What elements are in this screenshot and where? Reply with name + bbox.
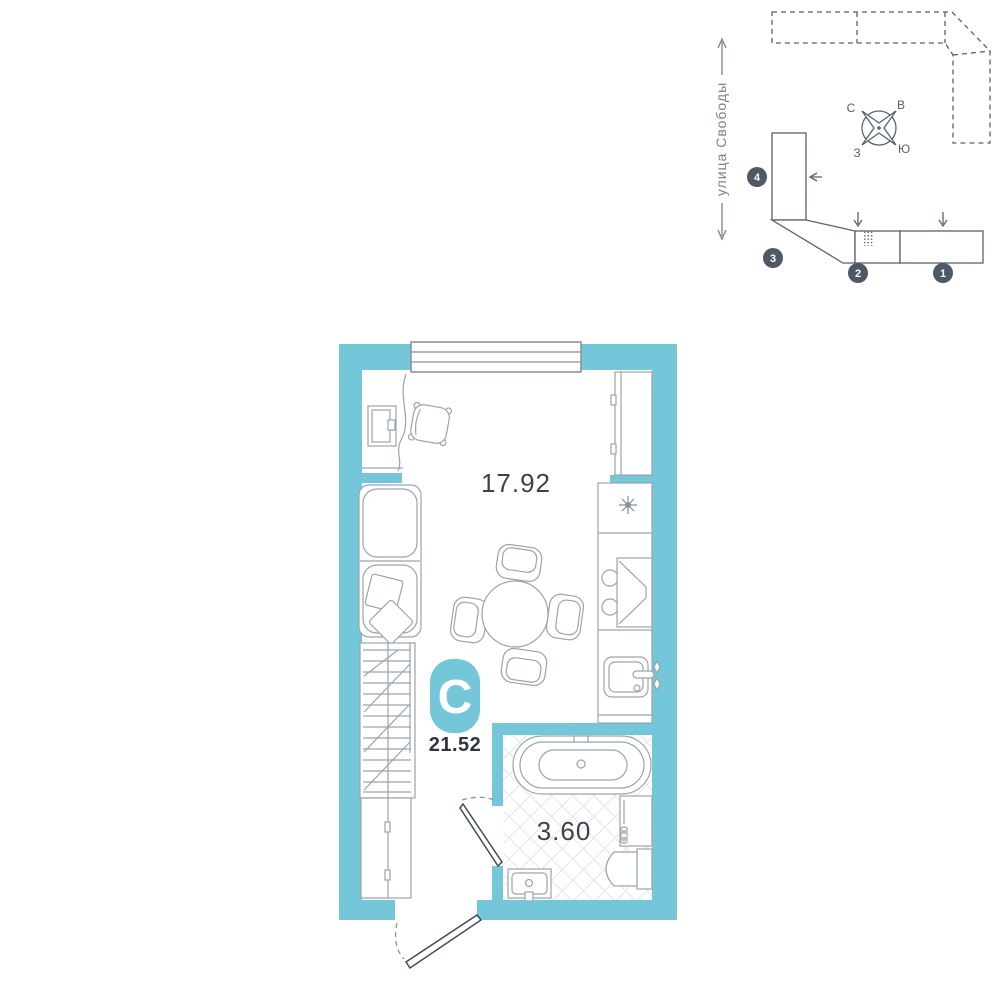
dining-chair	[545, 593, 585, 641]
dining-chair	[500, 647, 548, 687]
unit-location-marker	[864, 231, 874, 246]
building-section-3	[772, 220, 855, 263]
arrow-up-icon	[718, 39, 726, 75]
washing-machine	[620, 796, 652, 846]
living-area-label: 17.92	[481, 468, 551, 498]
street-label: улица Свободы	[713, 82, 729, 196]
arrow-down-icon	[718, 203, 726, 239]
bathroom-partition	[492, 723, 503, 806]
curtain-divider	[398, 374, 406, 471]
section-3-number: 3	[770, 253, 776, 265]
section-4-number: 4	[754, 172, 761, 184]
building-section-2	[855, 231, 900, 263]
entry-arrows	[810, 173, 947, 226]
bathroom-partition-stub	[492, 866, 503, 900]
nook-wall-stub	[362, 473, 402, 483]
desk	[362, 406, 403, 468]
floorplan-canvas: 4 3 2 1 С В З Ю улица Свободы	[0, 0, 1000, 1000]
compass-west-label: З	[853, 146, 860, 160]
office-chair	[408, 402, 452, 446]
section-2-number: 2	[855, 268, 861, 280]
floor-plan: С 21.52 17.92 3.60	[339, 342, 677, 968]
sofa	[359, 485, 421, 645]
compass-north-label: С	[847, 101, 856, 115]
entrance-door	[396, 915, 481, 968]
bathroom-area-label: 3.60	[537, 816, 592, 846]
unit-type-letter: С	[438, 671, 473, 724]
hallway-closet	[361, 798, 411, 898]
toilet	[606, 849, 652, 889]
compass-south-label: Ю	[898, 142, 910, 156]
washbasin	[508, 869, 551, 901]
tall-cabinet	[611, 372, 652, 475]
building-section-4	[772, 133, 806, 220]
bathroom-door	[460, 797, 502, 866]
arrow-down-icon	[939, 212, 947, 226]
arrow-left-icon	[810, 173, 822, 181]
window	[411, 342, 581, 372]
dining-table	[482, 581, 548, 647]
wardrobe	[360, 643, 415, 798]
compass-east-label: В	[897, 98, 905, 112]
bathtub	[513, 736, 651, 794]
street-indicator: улица Свободы	[713, 39, 729, 239]
site-plan: 4 3 2 1 С В З Ю улица Свободы	[713, 12, 990, 283]
unit-type-badge: С	[430, 659, 480, 733]
compass: С В З Ю	[847, 98, 910, 160]
building-section-1	[900, 231, 983, 263]
kitchen-wall-stub	[610, 475, 652, 483]
bathroom-top-wall	[492, 723, 652, 735]
dining-chair	[495, 543, 543, 583]
arrow-down-icon	[854, 212, 862, 226]
total-area-label: 21.52	[429, 734, 482, 756]
section-1-number: 1	[940, 268, 946, 280]
floorplan-page: 4 3 2 1 С В З Ю улица Свободы	[0, 0, 1000, 1000]
